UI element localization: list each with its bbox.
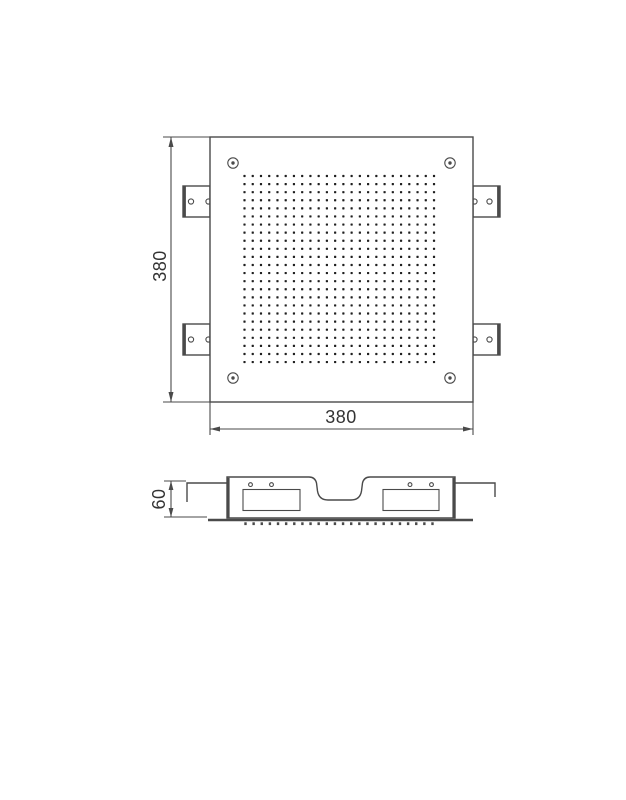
nozzle-dot xyxy=(383,361,385,363)
nozzle-dot xyxy=(425,191,427,193)
nozzle-dot xyxy=(400,353,402,355)
nozzle-dot xyxy=(400,207,402,209)
nozzle-dot xyxy=(309,280,311,282)
nozzle-dot xyxy=(252,304,254,306)
nozzle-dot xyxy=(285,361,287,363)
mounting-bracket xyxy=(472,186,500,217)
nozzle-dot xyxy=(260,304,262,306)
nozzle-tip xyxy=(383,522,385,525)
nozzle-dot xyxy=(318,272,320,274)
nozzle-dot xyxy=(326,337,328,339)
nozzle-dot xyxy=(252,345,254,347)
nozzle-dot xyxy=(392,207,394,209)
nozzle-dot xyxy=(400,361,402,363)
nozzle-dot xyxy=(285,183,287,185)
nozzle-dot xyxy=(351,353,353,355)
nozzle-dot xyxy=(367,361,369,363)
nozzle-dot xyxy=(252,215,254,217)
nozzle-dot xyxy=(408,361,410,363)
nozzle-dot xyxy=(351,280,353,282)
nozzle-dot xyxy=(276,361,278,363)
nozzle-dot xyxy=(301,345,303,347)
nozzle-dot xyxy=(416,280,418,282)
nozzle-dot xyxy=(318,199,320,201)
nozzle-dot xyxy=(252,223,254,225)
nozzle-dot xyxy=(285,264,287,266)
nozzle-dot xyxy=(268,296,270,298)
nozzle-dot xyxy=(260,232,262,234)
nozzle-dot xyxy=(276,321,278,323)
nozzle-dot xyxy=(243,199,245,201)
nozzle-dot xyxy=(276,248,278,250)
nozzle-dot xyxy=(359,183,361,185)
nozzle-dot xyxy=(400,183,402,185)
nozzle-dot xyxy=(285,312,287,314)
nozzle-dot xyxy=(351,256,353,258)
nozzle-dot xyxy=(392,296,394,298)
nozzle-dot xyxy=(268,312,270,314)
nozzle-dot xyxy=(252,353,254,355)
nozzle-dot xyxy=(260,272,262,274)
nozzle-dot xyxy=(392,288,394,290)
nozzle-dot xyxy=(408,207,410,209)
nozzle-dot xyxy=(433,223,435,225)
nozzle-dot xyxy=(268,361,270,363)
nozzle-dot xyxy=(400,280,402,282)
nozzle-dot xyxy=(433,191,435,193)
nozzle-dot xyxy=(334,240,336,242)
nozzle-dot xyxy=(351,232,353,234)
nozzle-dot xyxy=(268,321,270,323)
nozzle-dot xyxy=(367,312,369,314)
nozzle-dot xyxy=(326,175,328,177)
nozzle-dot xyxy=(433,321,435,323)
nozzle-dot xyxy=(425,240,427,242)
nozzle-dot xyxy=(268,256,270,258)
nozzle-dot xyxy=(416,321,418,323)
nozzle-dot xyxy=(383,312,385,314)
nozzle-dot xyxy=(260,223,262,225)
nozzle-dot xyxy=(383,288,385,290)
nozzle-dot xyxy=(367,296,369,298)
nozzle-dot xyxy=(318,264,320,266)
nozzle-dot xyxy=(285,256,287,258)
nozzle-dot xyxy=(243,288,245,290)
nozzle-dot xyxy=(260,280,262,282)
nozzle-dot xyxy=(433,353,435,355)
nozzle-dot xyxy=(425,215,427,217)
nozzle-tip xyxy=(358,522,360,525)
nozzle-dot xyxy=(408,337,410,339)
nozzle-dot xyxy=(301,280,303,282)
nozzle-dot xyxy=(367,337,369,339)
nozzle-tip xyxy=(415,522,417,525)
nozzle-dot xyxy=(334,304,336,306)
nozzle-dot xyxy=(400,232,402,234)
nozzle-dot xyxy=(326,232,328,234)
nozzle-dot xyxy=(243,280,245,282)
nozzle-dot xyxy=(433,232,435,234)
nozzle-dot xyxy=(252,321,254,323)
nozzle-dot xyxy=(400,304,402,306)
nozzle-dot xyxy=(383,304,385,306)
nozzle-dot xyxy=(285,215,287,217)
nozzle-dot xyxy=(318,353,320,355)
nozzle-dot xyxy=(375,280,377,282)
nozzle-dot xyxy=(359,191,361,193)
side-body-outline xyxy=(227,477,455,518)
nozzle-dot xyxy=(383,345,385,347)
nozzle-dot xyxy=(243,321,245,323)
nozzle-dot xyxy=(359,207,361,209)
nozzle-dot xyxy=(367,304,369,306)
nozzle-dot xyxy=(326,304,328,306)
nozzle-dot xyxy=(342,232,344,234)
nozzle-dot xyxy=(309,199,311,201)
nozzle-dot xyxy=(268,304,270,306)
nozzle-dot xyxy=(318,183,320,185)
nozzle-dot xyxy=(252,256,254,258)
nozzle-dot xyxy=(293,183,295,185)
nozzle-dot xyxy=(367,329,369,331)
nozzle-dot xyxy=(383,264,385,266)
arrowhead-left xyxy=(210,427,220,432)
nozzle-dot xyxy=(408,199,410,201)
nozzle-dot xyxy=(400,264,402,266)
nozzle-dot xyxy=(367,215,369,217)
nozzle-dot xyxy=(359,288,361,290)
nozzle-dot xyxy=(293,280,295,282)
nozzle-dot xyxy=(334,353,336,355)
nozzle-dot xyxy=(252,175,254,177)
nozzle-dot xyxy=(383,280,385,282)
nozzle-dot xyxy=(318,207,320,209)
nozzle-dot xyxy=(285,288,287,290)
nozzle-tip xyxy=(269,522,271,525)
nozzle-dot xyxy=(342,175,344,177)
nozzle-dot xyxy=(359,304,361,306)
nozzle-dot xyxy=(309,312,311,314)
right-spring-clip xyxy=(455,483,495,497)
nozzle-dot xyxy=(359,321,361,323)
nozzle-dot xyxy=(351,361,353,363)
nozzle-dot xyxy=(367,248,369,250)
nozzle-dot xyxy=(433,248,435,250)
nozzle-dot xyxy=(326,240,328,242)
nozzle-dot xyxy=(342,199,344,201)
nozzle-dot xyxy=(326,256,328,258)
nozzle-dot xyxy=(392,321,394,323)
nozzle-dot xyxy=(301,248,303,250)
nozzle-dot xyxy=(285,248,287,250)
nozzle-dot xyxy=(334,264,336,266)
nozzle-dot xyxy=(318,361,320,363)
nozzle-dot xyxy=(309,175,311,177)
nozzle-dot xyxy=(260,329,262,331)
nozzle-dot xyxy=(400,337,402,339)
left-spring-clip xyxy=(187,483,227,502)
nozzle-dot xyxy=(351,312,353,314)
nozzle-dot xyxy=(326,183,328,185)
nozzle-dot xyxy=(285,296,287,298)
nozzle-dot xyxy=(359,312,361,314)
nozzle-dot xyxy=(293,191,295,193)
nozzle-dot xyxy=(285,329,287,331)
nozzle-dot xyxy=(293,337,295,339)
nozzle-dot xyxy=(367,345,369,347)
nozzle-dot xyxy=(293,232,295,234)
nozzle-dot xyxy=(301,329,303,331)
nozzle-dot xyxy=(268,337,270,339)
nozzle-dot xyxy=(334,199,336,201)
nozzle-dot xyxy=(326,223,328,225)
nozzle-dot xyxy=(334,175,336,177)
nozzle-dot xyxy=(268,288,270,290)
nozzle-dot xyxy=(260,207,262,209)
nozzle-dot xyxy=(301,175,303,177)
nozzle-dot xyxy=(416,256,418,258)
nozzle-dot xyxy=(375,329,377,331)
nozzle-dot xyxy=(408,296,410,298)
nozzle-dot xyxy=(276,304,278,306)
nozzle-dot xyxy=(334,183,336,185)
nozzle-dot xyxy=(301,183,303,185)
nozzle-dot xyxy=(243,248,245,250)
nozzle-dot xyxy=(433,337,435,339)
nozzle-dot xyxy=(425,296,427,298)
nozzle-dot xyxy=(293,240,295,242)
nozzle-tip xyxy=(431,522,433,525)
nozzle-dot xyxy=(342,183,344,185)
nozzle-dot xyxy=(392,361,394,363)
nozzle-dot xyxy=(342,191,344,193)
nozzle-dot xyxy=(375,207,377,209)
nozzle-dot xyxy=(318,232,320,234)
side-view: 60 xyxy=(149,477,495,525)
nozzle-dot xyxy=(334,191,336,193)
nozzle-dot xyxy=(301,353,303,355)
nozzle-dot xyxy=(326,191,328,193)
nozzle-dot xyxy=(334,361,336,363)
drawing-canvas: 380 380 xyxy=(0,0,626,800)
nozzle-dot xyxy=(433,207,435,209)
nozzle-dot xyxy=(260,199,262,201)
nozzle-dot xyxy=(359,215,361,217)
nozzle-dot xyxy=(326,353,328,355)
nozzle-dot xyxy=(243,264,245,266)
nozzle-dot xyxy=(359,353,361,355)
nozzle-dot xyxy=(293,304,295,306)
nozzle-dot xyxy=(351,304,353,306)
nozzle-dot xyxy=(276,312,278,314)
nozzle-dot xyxy=(243,272,245,274)
nozzle-dot xyxy=(276,329,278,331)
nozzle-dot xyxy=(342,288,344,290)
nozzle-dot xyxy=(301,207,303,209)
nozzle-dot xyxy=(408,304,410,306)
nozzle-dot xyxy=(400,191,402,193)
nozzle-dot xyxy=(268,223,270,225)
nozzle-dot xyxy=(252,207,254,209)
nozzle-dot xyxy=(392,256,394,258)
nozzle-dot xyxy=(367,256,369,258)
nozzle-tip xyxy=(423,522,425,525)
nozzle-dot xyxy=(367,288,369,290)
nozzle-dot xyxy=(351,337,353,339)
nozzle-dot xyxy=(425,280,427,282)
nozzle-dot xyxy=(318,312,320,314)
nozzle-tip xyxy=(334,522,336,525)
nozzle-dot xyxy=(383,191,385,193)
nozzle-dot xyxy=(243,207,245,209)
nozzle-dot xyxy=(309,304,311,306)
nozzle-dot xyxy=(375,215,377,217)
nozzle-dot xyxy=(285,175,287,177)
nozzle-dot xyxy=(416,296,418,298)
nozzle-dot xyxy=(375,232,377,234)
nozzle-dot xyxy=(359,280,361,282)
nozzle-dot xyxy=(318,191,320,193)
nozzle-dot xyxy=(375,345,377,347)
nozzle-dot xyxy=(342,240,344,242)
nozzle-dot xyxy=(268,272,270,274)
nozzle-dot xyxy=(334,321,336,323)
nozzle-dot xyxy=(433,288,435,290)
nozzle-tip xyxy=(399,522,401,525)
nozzle-dot xyxy=(416,207,418,209)
nozzle-dot xyxy=(392,183,394,185)
nozzle-dot xyxy=(326,280,328,282)
nozzle-dot xyxy=(367,223,369,225)
nozzle-dot xyxy=(375,361,377,363)
nozzle-dot xyxy=(351,345,353,347)
mounting-bracket xyxy=(472,324,500,355)
nozzle-dot xyxy=(383,215,385,217)
nozzle-dot xyxy=(433,345,435,347)
nozzle-dot xyxy=(392,272,394,274)
nozzle-dot xyxy=(326,296,328,298)
dim-height-60: 60 xyxy=(149,481,207,517)
nozzle-dot xyxy=(416,288,418,290)
nozzle-dot xyxy=(383,296,385,298)
nozzle-dot xyxy=(416,199,418,201)
dim-label-width: 380 xyxy=(325,407,357,427)
nozzle-dot xyxy=(359,232,361,234)
nozzle-dot xyxy=(252,288,254,290)
nozzle-dot xyxy=(293,345,295,347)
nozzle-dot xyxy=(260,345,262,347)
nozzle-dot xyxy=(433,183,435,185)
nozzle-dot xyxy=(309,264,311,266)
nozzle-dot xyxy=(342,329,344,331)
nozzle-dot xyxy=(392,215,394,217)
nozzle-dot xyxy=(408,272,410,274)
nozzle-dot xyxy=(260,353,262,355)
nozzle-dot xyxy=(260,288,262,290)
nozzle-dot xyxy=(285,191,287,193)
nozzle-dot xyxy=(293,272,295,274)
nozzle-dot xyxy=(301,304,303,306)
nozzle-dot xyxy=(309,215,311,217)
nozzle-dot xyxy=(309,240,311,242)
nozzle-dot xyxy=(416,264,418,266)
nozzle-dot xyxy=(318,240,320,242)
nozzle-dot xyxy=(276,175,278,177)
nozzle-dot xyxy=(392,232,394,234)
nozzle-dot xyxy=(383,272,385,274)
nozzle-dot xyxy=(425,256,427,258)
nozzle-dot xyxy=(359,223,361,225)
nozzle-dot xyxy=(326,312,328,314)
nozzle-dot xyxy=(293,256,295,258)
nozzle-dot xyxy=(433,272,435,274)
nozzle-dot xyxy=(408,288,410,290)
nozzle-dot xyxy=(285,199,287,201)
nozzle-dot xyxy=(375,199,377,201)
nozzle-dot xyxy=(268,232,270,234)
nozzle-dot xyxy=(359,329,361,331)
nozzle-dot xyxy=(425,353,427,355)
nozzle-dot xyxy=(285,223,287,225)
nozzle-dot xyxy=(359,240,361,242)
nozzle-dot xyxy=(359,345,361,347)
nozzle-dot xyxy=(285,337,287,339)
nozzle-dot xyxy=(243,183,245,185)
nozzle-dot xyxy=(425,361,427,363)
nozzle-dot xyxy=(433,329,435,331)
nozzle-dot xyxy=(367,183,369,185)
nozzle-dot xyxy=(285,240,287,242)
nozzle-dot xyxy=(309,361,311,363)
nozzle-dot xyxy=(318,280,320,282)
nozzle-dot xyxy=(334,296,336,298)
nozzle-dot xyxy=(301,232,303,234)
mounting-bracket xyxy=(183,186,211,217)
nozzle-dot xyxy=(392,264,394,266)
nozzle-dot xyxy=(326,248,328,250)
nozzle-dot xyxy=(276,296,278,298)
nozzle-dot xyxy=(408,223,410,225)
nozzle-dot xyxy=(252,329,254,331)
nozzle-dot xyxy=(309,337,311,339)
nozzle-dot xyxy=(416,329,418,331)
nozzle-dot xyxy=(392,353,394,355)
nozzle-dot xyxy=(416,353,418,355)
nozzle-dot xyxy=(293,264,295,266)
nozzle-dot xyxy=(375,175,377,177)
nozzle-dot xyxy=(408,280,410,282)
nozzle-dot xyxy=(433,215,435,217)
nozzle-dot xyxy=(367,175,369,177)
nozzle-dot xyxy=(416,304,418,306)
nozzle-dot xyxy=(342,215,344,217)
nozzle-dot xyxy=(359,248,361,250)
nozzle-dot xyxy=(301,361,303,363)
nozzle-dot xyxy=(416,337,418,339)
nozzle-dot xyxy=(334,337,336,339)
nozzle-dot xyxy=(252,280,254,282)
nozzle-dot xyxy=(375,248,377,250)
nozzle-dot xyxy=(383,248,385,250)
nozzle-dot xyxy=(276,223,278,225)
nozzle-dot xyxy=(392,345,394,347)
nozzle-dot xyxy=(342,304,344,306)
nozzle-dot xyxy=(243,345,245,347)
nozzle-dot xyxy=(293,329,295,331)
nozzle-dot xyxy=(243,312,245,314)
nozzle-dot xyxy=(309,183,311,185)
nozzle-dot xyxy=(383,353,385,355)
